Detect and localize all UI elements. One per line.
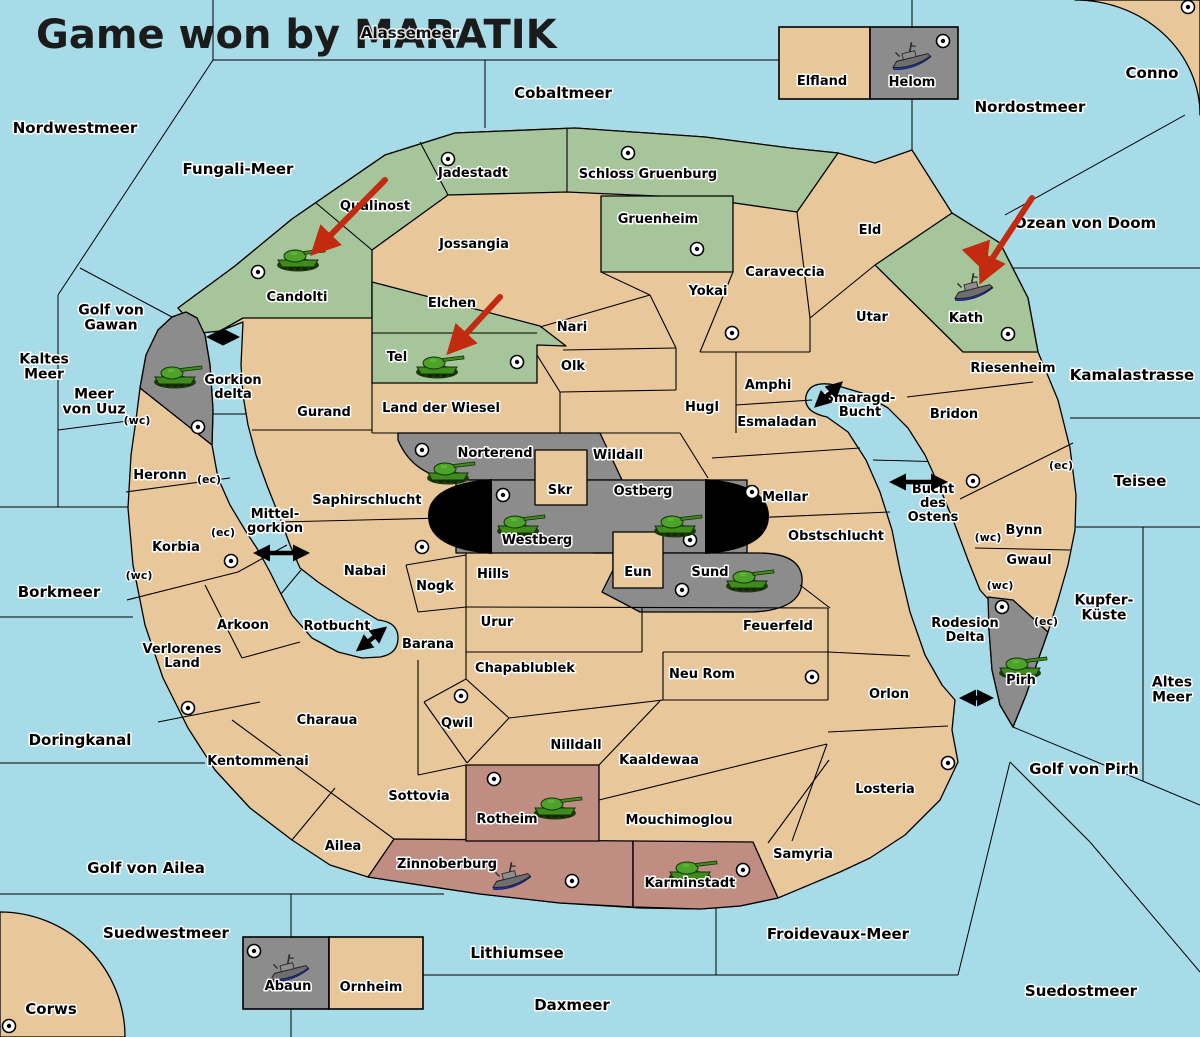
label-wildall: Wildall xyxy=(593,448,643,463)
label-nogk: Nogk xyxy=(416,579,454,594)
label-mittelgorkion: Mittel-gorkion xyxy=(247,507,303,536)
label-sottovia: Sottovia xyxy=(388,789,449,804)
supply-center-losteria xyxy=(942,757,955,770)
label-tel: Tel xyxy=(387,350,407,365)
label-altes-meer: AltesMeer xyxy=(1152,675,1192,706)
label-suedostmeer: Suedostmeer xyxy=(1025,982,1138,1000)
label-ailea: Ailea xyxy=(325,839,362,854)
label-nordostmeer: Nordostmeer xyxy=(975,98,1086,116)
label-land-der-wiesel: Land der Wiesel xyxy=(382,401,500,416)
label-gurand: Gurand xyxy=(297,405,351,420)
label-chapablublek: Chapablublek xyxy=(475,661,575,676)
label-abaun: Abaun xyxy=(265,979,312,994)
label-elchen: Elchen xyxy=(428,296,476,311)
label-samyria: Samyria xyxy=(773,847,833,862)
label-gruenheim: Gruenheim xyxy=(618,212,698,227)
label-caraveccia: Caraveccia xyxy=(745,265,824,280)
label-daxmeer: Daxmeer xyxy=(534,996,610,1014)
coast-marker-2: (ec) xyxy=(211,526,235,539)
supply-center-gawar xyxy=(192,421,205,434)
coast-marker-7: (ec) xyxy=(1034,615,1058,628)
supply-center-helom xyxy=(937,35,950,48)
label-kaltes-meer: KaltesMeer xyxy=(19,352,69,383)
label-rotheim: Rotheim xyxy=(476,812,537,827)
label-bridon: Bridon xyxy=(930,407,978,422)
label-sund: Sund xyxy=(691,565,728,580)
label-conno: Conno xyxy=(1126,64,1179,82)
label-golf-von-ailea: Golf von Ailea xyxy=(87,859,205,877)
supply-center-jadestadt xyxy=(442,153,455,166)
label-nabai: Nabai xyxy=(344,564,386,579)
supply-center-yokai xyxy=(726,327,739,340)
coast-marker-4: (ec) xyxy=(1049,459,1073,472)
label-arkoon: Arkoon xyxy=(217,618,269,633)
label-golf-von-pirh: Golf von Pirh xyxy=(1029,760,1139,778)
supply-center-mellar xyxy=(746,486,759,499)
label-feuerfeld: Feuerfeld xyxy=(743,619,813,634)
label-olk: Olk xyxy=(561,359,586,374)
label-ornheim: Ornheim xyxy=(340,980,403,995)
label-pirh: Pirh xyxy=(1006,673,1036,688)
coast-marker-6: (wc) xyxy=(987,579,1014,592)
label-urur: Urur xyxy=(481,615,514,630)
label-nari: Nari xyxy=(557,320,588,335)
label-suedwestmeer: Suedwestmeer xyxy=(103,924,229,942)
label-karminstadt: Karminstadt xyxy=(645,876,736,891)
label-helom: Helom xyxy=(889,75,936,90)
label-nilldall: Nilldall xyxy=(550,738,601,753)
supply-center-kath xyxy=(1002,328,1015,341)
label-froidevaux-meer: Froidevaux-Meer xyxy=(767,925,910,943)
game-map: Game won by MARATIK Alassemeer xyxy=(0,0,1200,1037)
supply-center-gruenheim xyxy=(691,243,704,256)
obscured-sea-label: Alassemeer xyxy=(361,24,460,42)
map-title: Game won by MARATIK xyxy=(36,12,559,58)
supply-center-nabai xyxy=(416,541,429,554)
label-amphi: Amphi xyxy=(745,378,792,393)
supply-center-bridon xyxy=(967,475,980,488)
label-ostberg: Ostberg xyxy=(614,484,673,499)
label-kentommenai: Kentommenai xyxy=(207,754,308,769)
label-korbia: Korbia xyxy=(152,540,200,555)
supply-center-rotheim xyxy=(488,773,501,786)
label-doringkanal: Doringkanal xyxy=(29,731,132,749)
region-ornheim xyxy=(329,937,423,1009)
label-orlon: Orlon xyxy=(869,687,909,702)
label-losteria: Losteria xyxy=(855,782,915,797)
coast-marker-5: (wc) xyxy=(975,531,1002,544)
supply-center-corws xyxy=(3,1020,16,1033)
label-eld: Eld xyxy=(859,223,882,238)
coast-marker-3: (wc) xyxy=(126,569,153,582)
label-candolti: Candolti xyxy=(267,290,328,305)
label-elfland: Elfland xyxy=(797,74,847,89)
coast-marker-0: (wc) xyxy=(124,414,151,427)
label-lithiumsee: Lithiumsee xyxy=(470,944,563,962)
label-borkmeer: Borkmeer xyxy=(18,583,101,601)
label-saphirschlucht: Saphirschlucht xyxy=(312,493,421,508)
region-rotheim xyxy=(466,765,599,841)
supply-center-korbia xyxy=(225,555,238,568)
label-qwil: Qwil xyxy=(441,716,473,731)
label-golf-von-gawan: Golf vonGawan xyxy=(78,303,144,334)
supply-center-norterend xyxy=(416,444,429,457)
label-skr: Skr xyxy=(548,483,573,498)
label-charaua: Charaua xyxy=(297,713,358,728)
label-cobaltmeer: Cobaltmeer xyxy=(514,84,612,102)
label-hills: Hills xyxy=(477,567,509,582)
label-kaaldewaa: Kaaldewaa xyxy=(619,753,699,768)
label-bynn: Bynn xyxy=(1006,523,1043,538)
region-gruenheim xyxy=(601,196,733,272)
label-jadestadt: Jadestadt xyxy=(437,166,508,181)
label-westberg: Westberg xyxy=(502,533,572,548)
label-corws: Corws xyxy=(25,1000,77,1018)
supply-center-candolti xyxy=(252,266,265,279)
label-obstschlucht: Obstschlucht xyxy=(788,529,884,544)
label-riesenheim: Riesenheim xyxy=(970,361,1055,376)
label-kamalastrasse: Kamalastrasse xyxy=(1070,366,1194,384)
coast-marker-1: (ec) xyxy=(197,473,221,486)
supply-center-schloss-gruenburg xyxy=(622,147,635,160)
supply-center-qwil xyxy=(455,690,468,703)
label-barana: Barana xyxy=(402,637,454,652)
label-mouchimoglou: Mouchimoglou xyxy=(626,813,733,828)
supply-center-tel xyxy=(511,356,524,369)
label-kath: Kath xyxy=(949,311,983,326)
map-svg: Game won by MARATIK Alassemeer xyxy=(0,0,1200,1037)
label-schloss-gruenburg: Schloss Gruenburg xyxy=(579,167,717,182)
label-zinnoberburg: Zinnoberburg xyxy=(397,857,497,872)
label-esmaladan: Esmaladan xyxy=(737,415,817,430)
supply-center-verlorenes-land xyxy=(182,702,195,715)
label-rotbucht: Rotbucht xyxy=(304,619,371,634)
label-yokai: Yokai xyxy=(687,284,727,299)
supply-center-karminstadt xyxy=(737,864,750,877)
label-jossangia: Jossangia xyxy=(438,237,509,252)
label-gwaul: Gwaul xyxy=(1006,553,1051,568)
label-kupfer-kueste: Kupfer-Küste xyxy=(1075,593,1134,624)
supply-center-neu-rom xyxy=(806,671,819,684)
supply-center-abaun xyxy=(248,945,261,958)
supply-center-westberg xyxy=(497,489,510,502)
label-teisee: Teisee xyxy=(1114,472,1167,490)
supply-center-sund xyxy=(676,584,689,597)
label-neu-rom: Neu Rom xyxy=(669,667,735,682)
label-mellar: Mellar xyxy=(762,490,808,505)
label-heronn: Heronn xyxy=(133,468,187,483)
label-ozean-von-doom: Ozean von Doom xyxy=(1014,214,1156,232)
supply-center-pirh xyxy=(996,601,1009,614)
label-hugl: Hugl xyxy=(685,400,719,415)
label-nordwestmeer: Nordwestmeer xyxy=(13,119,138,137)
label-eun: Eun xyxy=(624,565,651,580)
label-utar: Utar xyxy=(856,310,889,325)
label-norterend: Norterend xyxy=(457,446,532,461)
supply-center-zinnoberburg xyxy=(566,875,579,888)
label-fungali-meer: Fungali-Meer xyxy=(183,160,294,178)
supply-center-conno xyxy=(1182,1,1195,14)
